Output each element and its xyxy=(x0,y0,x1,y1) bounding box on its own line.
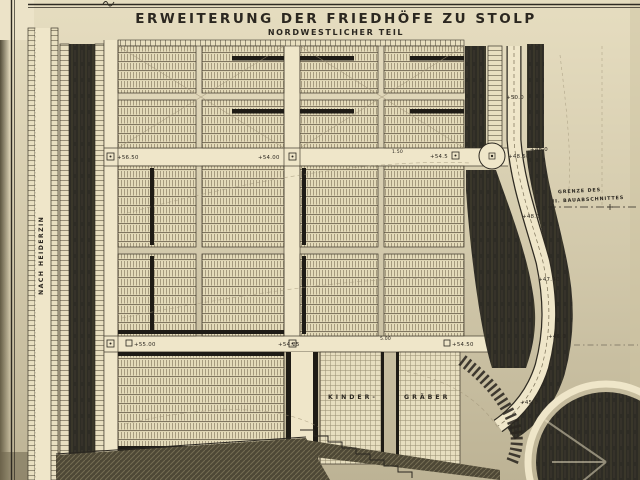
children-label-2: GRÄBER xyxy=(404,392,450,401)
elevation-path2-mid: +54.25 xyxy=(278,342,300,348)
tree-band-west xyxy=(60,44,104,458)
elevation-plaza-west: +48.50 xyxy=(508,154,530,160)
circular-plaza xyxy=(479,143,505,169)
elevation-road-c: +46.0 xyxy=(548,334,566,340)
dimension-path2: 5.00 xyxy=(380,336,391,342)
elevation-plaza-east: +48.0 xyxy=(530,147,548,153)
elevation-path1-west: +56.50 xyxy=(117,155,139,161)
plan-title: ERWEITERUNG DER FRIEDHÖFE ZU STOLP xyxy=(135,9,537,27)
elevation-path2-west: +55.00 xyxy=(134,342,156,348)
left-road-label: NACH HEIDERZIN xyxy=(38,216,45,295)
elevation-road-top: +50.0 xyxy=(506,95,524,101)
elevation-path1-east: +54.5 xyxy=(430,154,448,160)
children-label-1: KINDER- xyxy=(328,394,378,401)
dimension-path1: 1.50 xyxy=(392,149,403,155)
elevation-road-b: +47.40 xyxy=(538,277,560,283)
elevation-road-d: +45.0 xyxy=(520,400,538,406)
elevation-path2-east: +54.50 xyxy=(452,342,474,348)
cemetery-plan-map: ERWEITERUNG DER FRIEDHÖFE ZU STOLP NORDW… xyxy=(0,0,640,480)
elevation-road-a: +48.0 xyxy=(522,214,540,220)
scanned-plan-sheet: ERWEITERUNG DER FRIEDHÖFE ZU STOLP NORDW… xyxy=(0,0,640,480)
plan-subtitle: NORDWESTLICHER TEIL xyxy=(268,28,404,37)
elevation-path1-mid: +54.00 xyxy=(258,155,280,161)
